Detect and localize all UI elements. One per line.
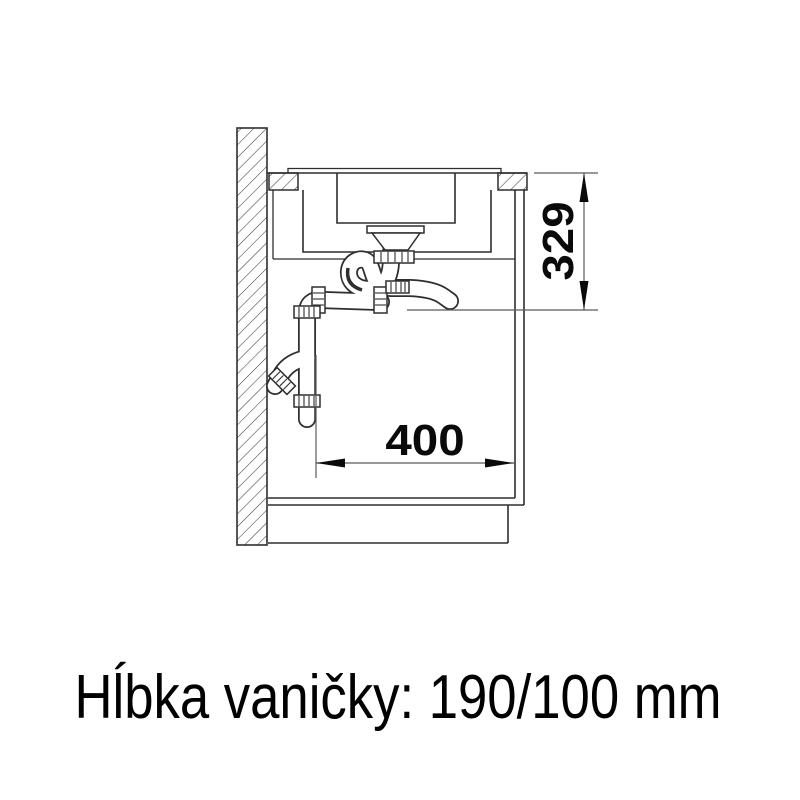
drain-flange bbox=[367, 226, 424, 263]
screenshot-root: 400 329 Hĺbka vaničky: 190/100 mm bbox=[0, 0, 800, 800]
dimension-width-value: 400 bbox=[385, 416, 464, 465]
sink-bowl-inner bbox=[337, 173, 455, 223]
worktop bbox=[267, 173, 527, 190]
plinth bbox=[268, 505, 508, 543]
caption-text: Hĺbka vaničky: 190/100 mm bbox=[74, 662, 721, 732]
dimension-height-value: 329 bbox=[534, 201, 583, 280]
dimension-width: 400 bbox=[316, 355, 514, 478]
drain-nut bbox=[374, 251, 414, 263]
sink-installation-diagram: 400 329 Hĺbka vaničky: 190/100 mm bbox=[0, 0, 800, 800]
wall bbox=[237, 128, 267, 545]
siphon bbox=[275, 252, 450, 419]
worktop-section-right bbox=[498, 173, 527, 190]
worktop-section-left bbox=[269, 173, 298, 190]
